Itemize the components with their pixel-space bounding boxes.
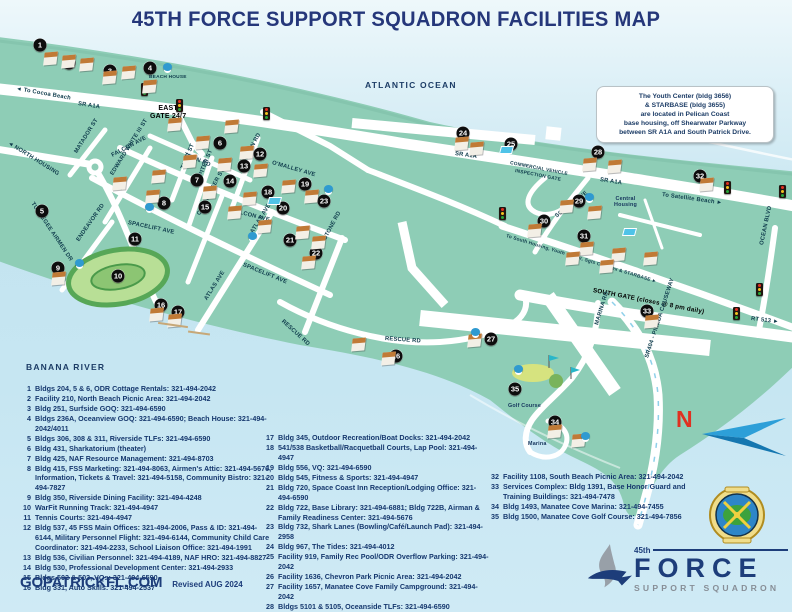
legend-item-text: Bldg 425, NAF Resource Management: 321-4… <box>35 454 214 464</box>
legend-item-32: 32Facility 1108, South Beach Picnic Area… <box>486 472 712 482</box>
legend-item-number: 4 <box>18 414 31 434</box>
force-support-squadron-logo: 45th FORCE SUPPORT SQUADRON <box>586 541 788 597</box>
legend-item-number: 28 <box>261 602 274 612</box>
legend-item-text: Bldg 345, Outdoor Recreation/Boat Docks:… <box>278 433 470 443</box>
youth-center-callout: The Youth Center (bldg 3656) & STARBASE … <box>596 86 774 143</box>
compass-arrow-icon <box>698 412 790 460</box>
legend-item-3: 3Bldg 251, Surfside GOQ: 321-494-6590 <box>18 404 272 414</box>
legend-item-5: 5Bldgs 306, 308 & 311, Riverside TLFs: 3… <box>18 434 272 444</box>
legend-item-number: 5 <box>18 434 31 444</box>
legend-item-text: Bldg 556, VQ: 321-494-6590 <box>278 463 372 473</box>
legend-item-number: 1 <box>18 384 31 394</box>
legend-item-number: 23 <box>261 522 274 542</box>
legend-item-number: 20 <box>261 473 274 483</box>
legend-item-text: Bldgs 306, 308 & 311, Riverside TLFs: 32… <box>35 434 210 444</box>
legend-item-number: 25 <box>261 552 274 572</box>
revision-date: Revised AUG 2024 <box>172 580 242 589</box>
legend-item-number: 18 <box>261 443 274 463</box>
legend-item-number: 26 <box>261 572 274 582</box>
legend-item-26: 26Facility 1636, Chevron Park Picnic Are… <box>261 572 489 582</box>
legend-item-number: 24 <box>261 542 274 552</box>
legend-item-1: 1Bldgs 204, 5 & 6, ODR Cottage Rentals: … <box>18 384 272 394</box>
legend-item-text: Bldg 537, 45 FSS Main Offices: 321-494-2… <box>35 523 272 553</box>
legend-item-21: 21Bldg 720, Space Coast Inn Reception/Lo… <box>261 483 489 503</box>
legend-item-text: 541/538 Basketball/Racquetball Courts, L… <box>278 443 489 463</box>
legend-item-24: 24Bldg 967, The Tides: 321-494-4012 <box>261 542 489 552</box>
legend-item-number: 19 <box>261 463 274 473</box>
legend-item-text: Bldg 1500, Manatee Cove Golf Course: 321… <box>503 512 682 522</box>
facilities-map-page: 45TH FORCE SUPPORT SQUADRON FACILITIES M… <box>0 0 792 612</box>
legend-item-text: Bldg 530, Professional Development Cente… <box>35 563 233 573</box>
legend-item-text: Bldg 251, Surfside GOQ: 321-494-6590 <box>35 404 166 414</box>
legend-item-number: 14 <box>18 563 31 573</box>
legend-item-20: 20Bldg 545, Fitness & Sports: 321-494-49… <box>261 473 489 483</box>
legend-item-number: 27 <box>261 582 274 602</box>
legend-item-text: Facility 210, North Beach Picnic Area: 3… <box>35 394 211 404</box>
legend-item-number: 21 <box>261 483 274 503</box>
legend-item-28: 28Bldgs 5101 & 5105, Oceanside TLFs: 321… <box>261 602 489 612</box>
legend-item-number: 6 <box>18 444 31 454</box>
legend-item-33: 33Services Complex: Bldg 1391, Base Hono… <box>486 482 712 502</box>
legend-item-8: 8Bldg 415, FSS Marketing: 321-494-8063, … <box>18 464 272 494</box>
legend-item-text: Bldgs 204, 5 & 6, ODR Cottage Rentals: 3… <box>35 384 216 394</box>
logo-name: FORCE <box>634 555 788 582</box>
legend-item-text: Facility 919, Family Rec Pool/ODR Overfl… <box>278 552 489 572</box>
legend-item-text: Bldg 431, Sharkatorium (theater) <box>35 444 146 454</box>
legend-item-text: Bldg 415, FSS Marketing: 321-494-8063, A… <box>35 464 272 494</box>
legend-item-25: 25Facility 919, Family Rec Pool/ODR Over… <box>261 552 489 572</box>
footer: GOPATRICKFL.COM Revised AUG 2024 <box>20 574 243 591</box>
logo-flame-icon <box>586 541 632 597</box>
legend-item-text: Services Complex: Bldg 1391, Base Honor … <box>503 482 712 502</box>
legend-item-6: 6Bldg 431, Sharkatorium (theater) <box>18 444 272 454</box>
legend-item-22: 22Bldg 722, Base Library: 321-494-6881; … <box>261 503 489 523</box>
legend-item-12: 12Bldg 537, 45 FSS Main Offices: 321-494… <box>18 523 272 553</box>
legend-item-text: Facility 1636, Chevron Park Picnic Area:… <box>278 572 462 582</box>
legend-item-23: 23Bldg 732, Shark Lanes (Bowling/Café/La… <box>261 522 489 542</box>
website-url: GOPATRICKFL.COM <box>20 574 162 591</box>
legend-column-3: 32Facility 1108, South Beach Picnic Area… <box>486 472 712 522</box>
legend-item-number: 12 <box>18 523 31 553</box>
legend-item-text: Bldg 536, Civilian Personnel: 321-494-41… <box>35 553 266 563</box>
legend-item-10: 10WarFit Running Track: 321-494-4947 <box>18 503 272 513</box>
legend-item-17: 17Bldg 345, Outdoor Recreation/Boat Dock… <box>261 433 489 443</box>
legend-item-2: 2Facility 210, North Beach Picnic Area: … <box>18 394 272 404</box>
legend-item-number: 35 <box>486 512 499 522</box>
legend-item-text: Bldg 1493, Manatee Cove Marina: 321-494-… <box>503 502 664 512</box>
legend-item-18: 18541/538 Basketball/Racquetball Courts,… <box>261 443 489 463</box>
legend-item-4: 4Bldgs 236A, Oceanview GOQ: 321-494-6590… <box>18 414 272 434</box>
logo-rule <box>653 549 788 551</box>
legend-item-text: Bldg 545, Fitness & Sports: 321-494-4947 <box>278 473 418 483</box>
legend-item-text: Bldg 722, Base Library: 321-494-6881; Bl… <box>278 503 489 523</box>
legend-item-number: 9 <box>18 493 31 503</box>
roundabout <box>87 159 104 176</box>
legend-item-text: Facility 1657, Manatee Cove Family Campg… <box>278 582 489 602</box>
legend-item-text: WarFit Running Track: 321-494-4947 <box>35 503 158 513</box>
legend-item-text: Bldg 720, Space Coast Inn Reception/Lodg… <box>278 483 489 503</box>
legend-item-9: 9Bldg 350, Riverside Dining Facility: 32… <box>18 493 272 503</box>
legend-item-11: 11Tennis Courts: 321-494-4947 <box>18 513 272 523</box>
legend-item-14: 14Bldg 530, Professional Development Cen… <box>18 563 272 573</box>
legend-item-number: 10 <box>18 503 31 513</box>
legend-item-text: Bldgs 5101 & 5105, Oceanside TLFs: 321-4… <box>278 602 450 612</box>
squadron-badge-icon <box>708 486 766 544</box>
legend-item-34: 34Bldg 1493, Manatee Cove Marina: 321-49… <box>486 502 712 512</box>
legend-item-7: 7Bldg 425, NAF Resource Management: 321-… <box>18 454 272 464</box>
legend-item-number: 7 <box>18 454 31 464</box>
legend-item-text: Bldg 967, The Tides: 321-494-4012 <box>278 542 395 552</box>
legend-item-19: 19Bldg 556, VQ: 321-494-6590 <box>261 463 489 473</box>
legend-item-13: 13Bldg 536, Civilian Personnel: 321-494-… <box>18 553 272 563</box>
legend-item-number: 17 <box>261 433 274 443</box>
legend-item-number: 8 <box>18 464 31 494</box>
legend-item-number: 13 <box>18 553 31 563</box>
compass-north-label: N <box>676 406 693 433</box>
legend-item-number: 33 <box>486 482 499 502</box>
legend-item-number: 2 <box>18 394 31 404</box>
page-title: 45TH FORCE SUPPORT SQUADRON FACILITIES M… <box>16 8 776 32</box>
legend-item-number: 11 <box>18 513 31 523</box>
logo-subtitle: SUPPORT SQUADRON <box>634 583 788 593</box>
legend-item-text: Bldg 732, Shark Lanes (Bowling/Café/Laun… <box>278 522 489 542</box>
legend-item-number: 22 <box>261 503 274 523</box>
legend-column-1: 1Bldgs 204, 5 & 6, ODR Cottage Rentals: … <box>18 384 272 593</box>
legend-item-text: Bldg 350, Riverside Dining Facility: 321… <box>35 493 202 503</box>
legend-column-2: 17Bldg 345, Outdoor Recreation/Boat Dock… <box>261 433 489 612</box>
legend-item-27: 27Facility 1657, Manatee Cove Family Cam… <box>261 582 489 602</box>
legend-item-text: Bldgs 236A, Oceanview GOQ: 321-494-6590;… <box>35 414 272 434</box>
legend-item-number: 32 <box>486 472 499 482</box>
legend-item-number: 34 <box>486 502 499 512</box>
legend-item-35: 35Bldg 1500, Manatee Cove Golf Course: 3… <box>486 512 712 522</box>
legend-item-number: 3 <box>18 404 31 414</box>
legend-item-text: Tennis Courts: 321-494-4947 <box>35 513 132 523</box>
legend-item-text: Facility 1108, South Beach Picnic Area: … <box>503 472 683 482</box>
